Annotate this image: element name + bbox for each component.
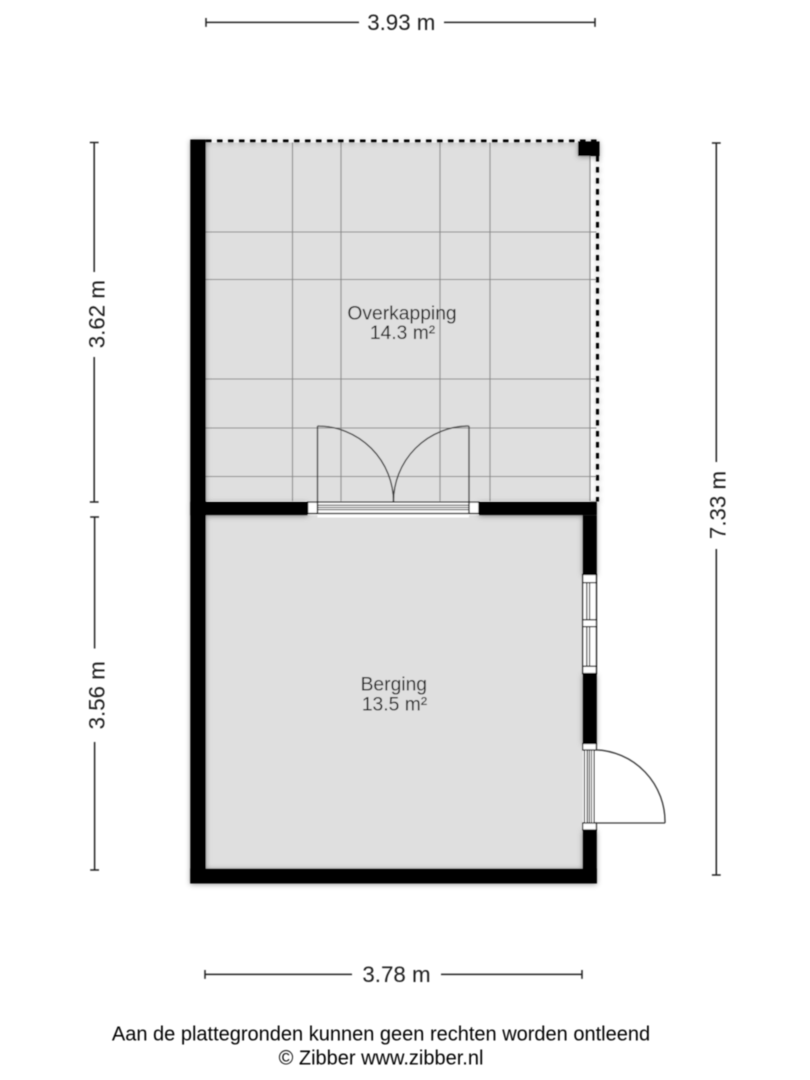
svg-text:3.56 m: 3.56 m <box>85 661 110 729</box>
svg-text:3.62 m: 3.62 m <box>84 280 109 348</box>
svg-text:3.78 m: 3.78 m <box>362 962 430 987</box>
svg-text:Berging: Berging <box>361 675 427 696</box>
svg-text:3.93 m: 3.93 m <box>367 10 435 35</box>
svg-text:13.5 m²: 13.5 m² <box>362 695 428 716</box>
svg-text:© Zibber www.zibber.nl: © Zibber www.zibber.nl <box>279 1048 484 1070</box>
svg-text:7.33 m: 7.33 m <box>705 471 730 539</box>
svg-text:14.3 m²: 14.3 m² <box>370 323 436 344</box>
svg-text:Aan de plattegronden kunnen ge: Aan de plattegronden kunnen geen rechten… <box>112 1024 650 1046</box>
svg-text:Overkapping: Overkapping <box>347 303 456 324</box>
